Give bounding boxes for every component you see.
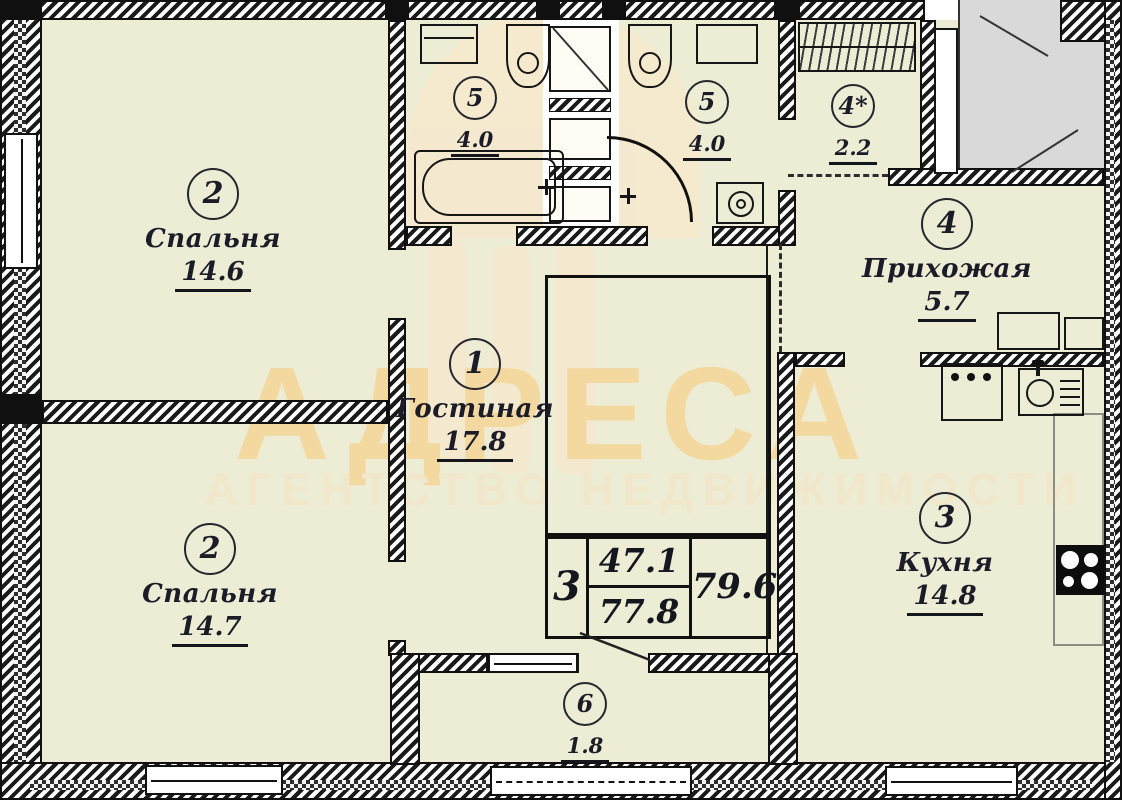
toilet-bowl [639,52,661,74]
room-number: 5 [453,76,497,120]
stamp-living-area: 47.1 [589,536,689,588]
wall [712,226,780,246]
bathtub [414,150,564,224]
washing-machine [420,24,478,64]
washer-drum-inner [736,199,746,209]
room-name: Спальня [125,579,295,609]
burner [1063,576,1074,587]
room-area: 14.8 [907,581,982,616]
room-number: 2 [187,168,239,220]
burner-dot [967,373,975,381]
stove [1056,545,1104,595]
balcony-door [488,653,578,673]
window [4,133,38,269]
room-label-bathroom-left: 5 4.0 [390,76,560,157]
wall [1106,20,1115,762]
room-name: Спальня [128,224,298,254]
burner [1084,553,1098,567]
window-line [494,663,572,665]
tap-icon [620,188,636,204]
room-number: 2 [184,523,236,575]
window-line [151,780,277,782]
room-number: 3 [919,492,971,544]
room-name: Прихожая [862,254,1032,284]
stamp-box [545,275,771,539]
stamp-areas: 47.1 77.8 [589,536,692,636]
window [885,766,1018,796]
washing-machine [716,182,764,224]
window-line [21,139,23,263]
drainer-line [1060,388,1080,390]
wall [768,653,798,765]
wall-junction [774,0,800,20]
burner-dot [951,373,959,381]
stamp-rooms-count: 3 [548,536,589,636]
room-name: Гостиная [390,394,560,424]
room-area: 17.8 [437,427,512,462]
fixture-line [424,37,474,39]
toilet-bowl [517,52,539,74]
drainer-line [1060,404,1080,406]
floor-plan: АДРЕСА АГЕНТСТВО НЕДВИЖИМОСТИ [0,0,1122,800]
room-label-bedroom-2: 2 Спальня 14.7 [125,523,295,647]
kitchen-sink [1018,368,1084,416]
drainer-line [1060,380,1080,382]
wall [406,226,452,246]
room-area: 5.7 [918,287,975,322]
tap-icon [538,179,554,195]
wardrobe-rail [800,46,914,48]
wall-junction [536,0,560,20]
wall [14,20,26,762]
wall [795,352,845,367]
burner [1081,572,1098,589]
room-label-balcony: 6 1.8 [500,682,670,763]
room-area: 2.2 [829,135,878,165]
wardrobe [798,22,916,72]
wall [888,168,1104,186]
room-area: 14.7 [172,612,247,647]
room-area: 14.6 [175,257,250,292]
drainer-line [1060,396,1080,398]
room-label-bathroom-right: 5 4.0 [622,80,792,161]
room-area: 4.0 [683,131,732,161]
room-area: 4.0 [451,127,500,157]
room-label-kitchen: 3 Кухня 14.8 [860,492,1030,616]
info-table: 3 47.1 77.8 79.6 [545,533,771,639]
burner [1061,551,1079,569]
room-name: Кухня [860,548,1030,578]
room-area: 1.8 [561,733,610,763]
sink [696,24,758,64]
zone-boundary [788,174,888,177]
room-number: 5 [685,80,729,124]
room-label-closet: 4* 2.2 [768,84,938,165]
window [145,765,283,795]
room-label-bedroom-1: 2 Спальня 14.6 [128,168,298,292]
wall-junction [0,394,42,424]
window-line [496,781,686,783]
wall [390,653,420,765]
wall-junction [0,0,42,20]
faucet [1032,360,1044,366]
cooktop [941,363,1003,421]
room-number: 4 [921,198,973,250]
sink-bowl [1026,379,1054,407]
wall-junction [602,0,626,20]
wall [516,226,648,246]
cabinet [1064,317,1104,350]
balcony-glazing [490,766,692,796]
burner-dot [983,373,991,381]
window-line [891,781,1012,783]
zone-boundary [779,244,782,352]
kitchen-counter [1053,413,1104,646]
wall [778,190,796,246]
bathtub-inner [422,158,556,216]
stamp-overall-area: 79.6 [692,536,777,636]
room-number: 6 [563,682,607,726]
room-label-living-room: 1 Гостиная 17.8 [390,338,560,462]
room-label-hallway: 4 Прихожая 5.7 [862,198,1032,322]
room-number: 4* [831,84,875,128]
room-number: 1 [449,338,501,390]
toilet [628,24,672,88]
stamp-total-area: 77.8 [589,588,689,637]
wall [42,400,388,424]
wall [777,352,795,662]
wall-junction [385,0,409,20]
